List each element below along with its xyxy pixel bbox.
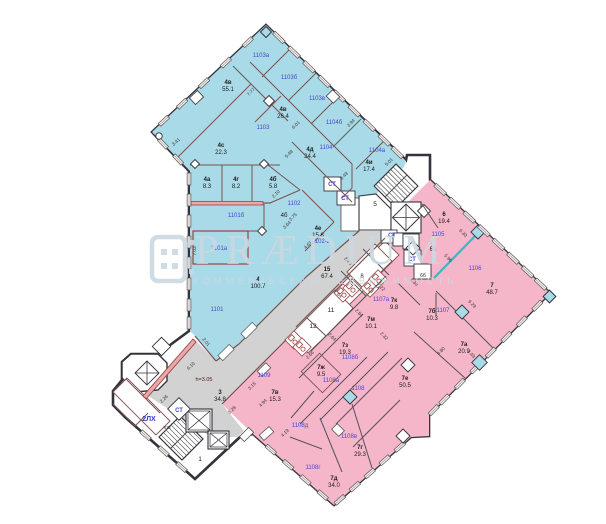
svg-text:7б: 7б <box>428 308 435 315</box>
svg-text:1107: 1107 <box>437 308 451 314</box>
svg-text:7д: 7д <box>330 476 337 482</box>
svg-text:8.3: 8.3 <box>203 184 212 190</box>
svg-text:1108в: 1108в <box>341 434 357 440</box>
svg-text:2ЛХ: 2ЛХ <box>142 416 156 423</box>
svg-text:1102: 1102 <box>288 201 302 207</box>
svg-text:10.1: 10.1 <box>365 324 377 330</box>
svg-text:15.3: 15.3 <box>269 397 281 403</box>
svg-text:34.8: 34.8 <box>214 397 226 403</box>
svg-text:48.7: 48.7 <box>486 290 498 296</box>
svg-text:8.2: 8.2 <box>232 184 241 190</box>
svg-text:1108а: 1108а <box>323 378 340 384</box>
svg-text:5: 5 <box>373 201 377 208</box>
svg-text:7м: 7м <box>367 317 375 323</box>
svg-text:12: 12 <box>309 323 317 330</box>
svg-text:СТ: СТ <box>341 196 349 202</box>
svg-text:СТ: СТ <box>328 182 336 188</box>
svg-text:1103в: 1103в <box>309 96 325 102</box>
svg-text:1107а: 1107а <box>373 297 390 303</box>
svg-text:4д: 4д <box>306 147 313 153</box>
svg-text:1104а: 1104а <box>369 148 386 154</box>
svg-text:55.1: 55.1 <box>222 87 234 93</box>
svg-text:1103а: 1103а <box>253 53 270 59</box>
svg-text:50.5: 50.5 <box>399 383 411 389</box>
svg-text:1103б: 1103б <box>281 75 298 81</box>
svg-text:1108: 1108 <box>352 386 366 392</box>
svg-text:1104б: 1104б <box>326 120 343 126</box>
svg-text:СТ: СТ <box>175 408 183 414</box>
svg-text:1101б: 1101б <box>228 213 245 219</box>
svg-text:7в: 7в <box>271 390 278 396</box>
svg-text:1108г: 1108г <box>305 465 321 471</box>
svg-text:7а: 7а <box>461 342 468 348</box>
svg-text:26.4: 26.4 <box>277 114 289 120</box>
svg-text:4б: 4б <box>281 213 288 219</box>
svg-text:1104: 1104 <box>320 145 334 151</box>
svg-text:PRÆDIUM: PRÆDIUM <box>195 228 448 274</box>
svg-text:1101: 1101 <box>211 307 225 313</box>
svg-text:1108д: 1108д <box>292 423 309 429</box>
svg-text:4б: 4б <box>269 176 276 183</box>
svg-text:1: 1 <box>198 456 202 463</box>
svg-text:1106: 1106 <box>469 266 483 272</box>
svg-text:7з: 7з <box>342 343 348 349</box>
svg-text:4в: 4в <box>224 80 231 86</box>
svg-text:КОММЕРЧЕСКАЯ НЕДВИЖИМОСТЬ: КОММЕРЧЕСКАЯ НЕДВИЖИМОСТЬ <box>193 276 458 287</box>
svg-text:7к: 7к <box>391 298 397 304</box>
svg-text:4г: 4г <box>233 177 239 183</box>
svg-text:22.3: 22.3 <box>215 150 227 156</box>
svg-text:11: 11 <box>328 307 335 314</box>
svg-text:4а: 4а <box>204 177 211 183</box>
svg-text:29.3: 29.3 <box>354 452 366 458</box>
svg-text:19.4: 19.4 <box>438 219 450 225</box>
svg-text:1103: 1103 <box>257 125 271 131</box>
svg-text:7ж: 7ж <box>317 365 325 371</box>
svg-text:4с: 4с <box>218 143 225 149</box>
svg-text:7г: 7г <box>357 445 363 451</box>
svg-text:34.0: 34.0 <box>328 483 340 489</box>
svg-text:XXI: XXI <box>163 425 170 430</box>
svg-text:24.4: 24.4 <box>304 154 316 160</box>
svg-text:1108б: 1108б <box>342 355 359 361</box>
svg-text:10.3: 10.3 <box>426 316 438 322</box>
svg-text:17.4: 17.4 <box>363 167 375 173</box>
svg-text:4и: 4и <box>365 160 372 166</box>
svg-text:4в: 4в <box>279 107 286 113</box>
svg-text:9.8: 9.8 <box>390 305 399 311</box>
svg-text:1109: 1109 <box>258 373 272 379</box>
svg-text:5.8: 5.8 <box>269 184 278 190</box>
svg-text:7е: 7е <box>402 376 409 382</box>
svg-text:h=3.05: h=3.05 <box>196 377 213 383</box>
